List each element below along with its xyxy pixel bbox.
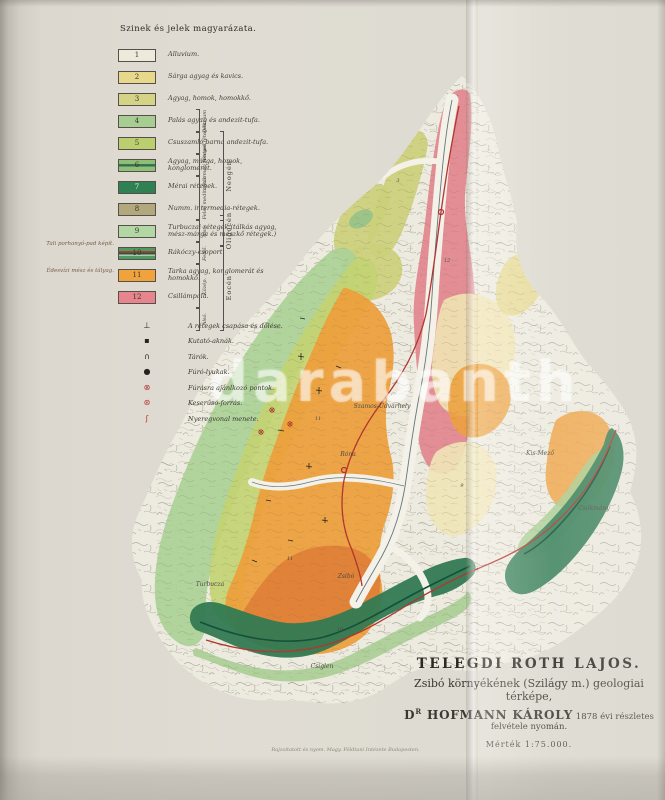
legend-swatch: 9 bbox=[118, 225, 156, 238]
legend-swatch: 12 bbox=[118, 291, 156, 304]
strat-era-label: Neogén bbox=[226, 160, 232, 192]
legend-item-number: 7 bbox=[135, 184, 139, 191]
map-place-label: Csókmány bbox=[578, 505, 610, 512]
legend-side-note: Édesvízi mész és tályag. bbox=[16, 268, 114, 274]
bracket-line bbox=[196, 109, 200, 133]
map-place-label: 12 bbox=[444, 258, 450, 264]
strat-subgroup-label: Felső mediterrán bbox=[202, 176, 208, 219]
legend-item-number: 11 bbox=[133, 272, 142, 279]
legend-swatch: 2 bbox=[118, 71, 156, 84]
map-credit: DR HOFMANN KÁROLY 1878 évi részletes fel… bbox=[398, 707, 660, 732]
map-title: Zsibó környékének (Szilágy m.) geologiai… bbox=[398, 677, 660, 703]
symbol-row: ∩Tárók. bbox=[136, 349, 283, 365]
scanned-map-sheet: 1231111109Szamos-UdvarhelyRónaZsibóTurbu… bbox=[0, 0, 665, 800]
credit-prefix: D bbox=[404, 708, 415, 722]
legend-swatch: 10 bbox=[118, 247, 156, 260]
strat-subgroup-label: Közép. bbox=[202, 278, 208, 295]
legend-item-number: 1 bbox=[135, 52, 139, 59]
scan-edge-shadow bbox=[0, 0, 665, 7]
strat-era: Neogén bbox=[220, 132, 232, 220]
legend-swatch: 4 bbox=[118, 115, 156, 128]
scan-edge-shadow bbox=[657, 0, 665, 800]
title-block: TELEGDI ROTH LAJOS. Zsibó környékének (S… bbox=[398, 656, 660, 749]
symbol-row: ʃNyeregvonal menete. bbox=[136, 411, 283, 427]
bracket-line bbox=[220, 131, 224, 221]
legend-item-number: 12 bbox=[133, 294, 142, 301]
legend-item-number: 10 bbox=[133, 250, 142, 257]
printer-imprint: Rajzoltatott és nyom. Magy. Földtani Int… bbox=[248, 747, 443, 753]
symbol-label: Nyeregvonal menete. bbox=[188, 415, 259, 423]
map-place-label: 11 bbox=[287, 556, 293, 562]
legend-item-number: 9 bbox=[135, 228, 139, 235]
strat-subgroup: Felső mediterrán bbox=[196, 176, 208, 220]
map-place-label: Csiglen bbox=[311, 663, 334, 670]
strat-subgroup: Felső. bbox=[196, 242, 208, 264]
symbol-row: ⊗Fúrásra ajánlkozó pontok. bbox=[136, 380, 283, 396]
legend-swatch: 8 bbox=[118, 203, 156, 216]
symbol-label: Keserűsó-forrás. bbox=[188, 399, 242, 407]
legend-swatch: 5 bbox=[118, 137, 156, 150]
bracket-line bbox=[196, 263, 200, 309]
legend-title: Szinek és jelek magyarázata. bbox=[120, 24, 260, 34]
symbol-row: ⊥A rétegek csapása és dőlése. bbox=[136, 318, 283, 334]
shaft-icon: ▪ bbox=[136, 337, 158, 345]
symbol-label: Fúrásra ajánlkozó pontok. bbox=[188, 384, 274, 392]
symbol-label: Tárók. bbox=[188, 353, 209, 361]
legend-item-number: 5 bbox=[135, 140, 139, 147]
map-place-label: Zsibó bbox=[337, 573, 355, 580]
strat-era-label: Oligocén bbox=[226, 212, 232, 249]
borehole-icon: ● bbox=[136, 368, 158, 376]
legend-swatch: 1 bbox=[118, 49, 156, 62]
legend-swatch: 7 bbox=[118, 181, 156, 194]
map-place-label: Róna bbox=[339, 451, 356, 458]
symbols-key: ⊥A rétegek csapása és dőlése.▪Kutató-akn… bbox=[136, 318, 283, 427]
credit-name: HOFMANN KÁROLY bbox=[422, 708, 573, 722]
symbol-row: ▪Kutató-aknák. bbox=[136, 334, 283, 350]
strat-subgroup-label: Alsó. bbox=[202, 225, 208, 237]
bracket-line bbox=[220, 215, 224, 247]
bracket-line bbox=[196, 175, 200, 221]
strike-dip-icon: ⊥ bbox=[136, 322, 158, 330]
credit-superscript: R bbox=[415, 707, 422, 716]
map-place-label: Szamos-Udvarhely bbox=[354, 403, 411, 410]
strat-subgroup: Szármáti rétegek bbox=[196, 154, 208, 176]
map-author: TELEGDI ROTH LAJOS. bbox=[398, 656, 660, 672]
symbol-row: ●Fúró-lyukak. bbox=[136, 365, 283, 381]
map-place-label: 10 bbox=[337, 627, 344, 633]
bracket-line bbox=[196, 219, 200, 243]
strat-era-label: Eocén bbox=[226, 275, 232, 300]
legend-swatch: 3 bbox=[118, 93, 156, 106]
legend-item-number: 3 bbox=[135, 96, 139, 103]
scan-edge-shadow bbox=[0, 756, 665, 800]
fold-axis-icon: ʃ bbox=[136, 415, 158, 423]
bracket-line bbox=[196, 153, 200, 177]
bracket-line bbox=[196, 241, 200, 265]
strat-subgroup-label: Felső. bbox=[202, 246, 208, 261]
map-place-label: 3 bbox=[396, 178, 399, 184]
legend-item-number: 2 bbox=[135, 74, 139, 81]
symbol-label: Kutató-aknák. bbox=[188, 337, 234, 345]
adit-icon: ∩ bbox=[136, 353, 158, 361]
legend-item-number: 8 bbox=[135, 206, 139, 213]
legend-swatch: 6 bbox=[118, 159, 156, 172]
paper-fold-line bbox=[466, 0, 478, 800]
symbol-label: A rétegek csapása és dőlése. bbox=[188, 322, 283, 330]
legend-stratigraphy-brackets: DiluviumPontusi rétegekSzármáti rétegekF… bbox=[196, 44, 256, 304]
drill-point-icon: ⊗ bbox=[136, 384, 158, 392]
strat-era: Oligocén bbox=[220, 216, 232, 246]
strat-subgroup: Közép. bbox=[196, 264, 208, 308]
strat-subgroup: Alsó. bbox=[196, 220, 208, 242]
legend-item-number: 6 bbox=[135, 162, 139, 169]
legend-item-number: 4 bbox=[135, 118, 139, 125]
bracket-line bbox=[196, 131, 200, 155]
map-place-label: Turbucza bbox=[196, 581, 225, 588]
map-place-label: 11 bbox=[315, 416, 321, 422]
symbol-row: ⊛Keserűsó-forrás. bbox=[136, 396, 283, 412]
bitter-spring-icon: ⊛ bbox=[136, 399, 158, 407]
symbol-label: Fúró-lyukak. bbox=[188, 368, 230, 376]
legend-side-note: Tali porhanyó-pad képít. bbox=[28, 241, 114, 247]
legend-swatch: 11 bbox=[118, 269, 156, 282]
map-place-label: Kis-Mező bbox=[525, 450, 554, 457]
